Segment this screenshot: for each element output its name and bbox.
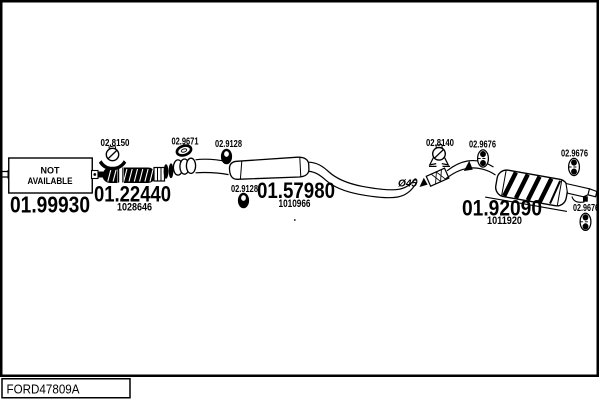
front-pipe-number[interactable]: 01.99930	[10, 192, 90, 218]
rear-hanger-top-icon	[478, 150, 489, 167]
rear-hanger-right-icon	[569, 158, 580, 175]
centre-hanger-top-number[interactable]: 02.9128	[215, 139, 242, 150]
centre-hanger-bottom-number[interactable]: 02.9128	[231, 184, 258, 195]
centre-silencer-drawing	[229, 157, 308, 179]
rear-hanger-bottom-number[interactable]: 02.9676	[573, 203, 599, 214]
not-available-line2: AVAILABLE	[28, 176, 73, 187]
rear-silencer-oe-ref: 1011920	[487, 215, 522, 227]
not-available-line1: NOT	[41, 166, 60, 177]
rear-hanger-top-number[interactable]: 02.9676	[469, 139, 496, 150]
rear-hanger-bottom-icon	[580, 213, 591, 230]
pipe-diameter-annotation: Ø45	[398, 178, 417, 190]
vehicle-code: FORD47809A	[7, 382, 80, 397]
print-dot	[294, 219, 296, 221]
exhaust-system-diagram: NOT AVAILABLE	[0, 0, 600, 400]
centre-silencer-oe-ref: 1010966	[279, 198, 311, 210]
flex-pipe-oe-ref: 1028646	[117, 202, 152, 214]
centre-hanger-bottom-icon	[238, 193, 249, 209]
centre-hanger-top-icon	[221, 149, 232, 165]
rear-clamp-number[interactable]: 02.8140	[426, 138, 454, 149]
rear-hanger-right-number[interactable]: 02.9676	[561, 148, 588, 159]
vehicle-code-box: FORD47809A	[2, 379, 130, 398]
not-available-box: NOT AVAILABLE	[9, 158, 93, 193]
front-clamp-number[interactable]: 02.8150	[101, 138, 130, 149]
gasket-number[interactable]: 02.9671	[172, 136, 199, 147]
